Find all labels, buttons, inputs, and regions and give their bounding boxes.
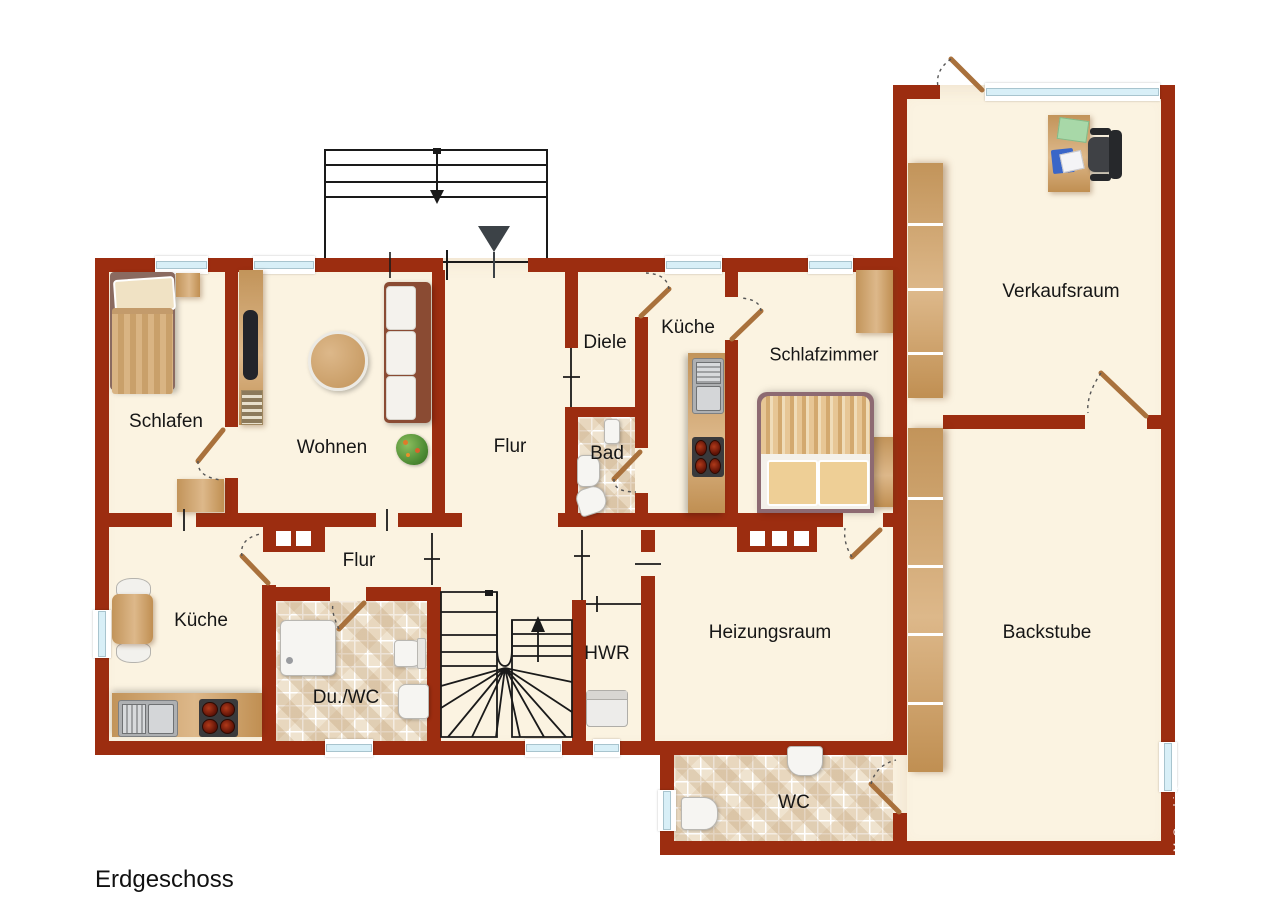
- wall: [572, 600, 586, 741]
- wall: [95, 258, 109, 610]
- wall: [398, 513, 462, 527]
- wall: [225, 270, 238, 427]
- chair: [116, 642, 151, 663]
- room-label-hwr: HWR: [584, 643, 629, 665]
- room-label-wohnen: Wohnen: [297, 437, 367, 459]
- wall: [893, 85, 940, 99]
- wall: [565, 407, 648, 417]
- cistern: [604, 419, 620, 444]
- wall: [95, 741, 325, 755]
- stair-start-dot: [433, 148, 441, 154]
- washing-machine: [586, 690, 628, 727]
- wall: [109, 513, 172, 527]
- wardrobe: [856, 270, 893, 333]
- round-table: [308, 331, 368, 391]
- window: [525, 739, 562, 757]
- floor-plan: Schlafen Wohnen Flur Diele Bad Küche Sch…: [0, 0, 1280, 905]
- nightstand: [176, 273, 200, 297]
- shower: [280, 620, 336, 676]
- window: [93, 610, 111, 658]
- window: [808, 256, 853, 274]
- double-bed: [757, 392, 874, 513]
- green-pad: [1057, 117, 1090, 143]
- shelf-unit: [908, 163, 943, 398]
- tv: [243, 310, 258, 380]
- single-bed: [110, 272, 175, 390]
- wall: [641, 530, 655, 552]
- window: [325, 739, 373, 757]
- wall: [883, 513, 893, 527]
- chimney-flue: [794, 531, 809, 546]
- shelf-books: [241, 390, 263, 425]
- plant: [396, 434, 428, 465]
- room-label-diele: Diele: [583, 332, 626, 354]
- stove: [692, 437, 724, 477]
- wall: [432, 270, 445, 517]
- stair-down-arrow-icon: [430, 190, 444, 204]
- wall: [660, 841, 1175, 855]
- wall: [635, 417, 648, 448]
- floor-title: Erdgeschoss: [95, 866, 234, 894]
- room-label-schlafzimmer: Schlafzimmer: [769, 345, 878, 366]
- wall: [315, 258, 443, 272]
- chimney-flue: [276, 531, 291, 546]
- wall: [660, 831, 674, 855]
- wall: [725, 270, 738, 297]
- wall: [893, 85, 907, 755]
- toilet: [394, 640, 424, 667]
- chimney-flue: [750, 531, 765, 546]
- wall: [660, 741, 674, 790]
- room-label-heizungsraum: Heizungsraum: [709, 622, 832, 644]
- bathroom-sink: [398, 684, 429, 719]
- wall: [725, 340, 738, 513]
- wall: [196, 513, 376, 527]
- watermark: McGrundriss: [1172, 797, 1184, 852]
- office-chair-back: [1109, 130, 1122, 179]
- bathroom-sink: [787, 746, 823, 776]
- wall: [528, 258, 665, 272]
- shop-window: [985, 83, 1160, 101]
- room-label-kueche-upper: Küche: [661, 317, 715, 339]
- wall: [262, 585, 276, 741]
- wall: [635, 493, 648, 513]
- side-cabinet: [874, 437, 893, 507]
- room-label-bad: Bad: [590, 443, 624, 465]
- dresser: [177, 479, 224, 512]
- wall: [427, 587, 441, 741]
- entrance-marker-icon: [478, 226, 510, 252]
- wall: [373, 741, 525, 755]
- kitchen-sink: [692, 358, 724, 414]
- wall: [562, 741, 593, 755]
- kitchen-sink: [118, 700, 178, 737]
- dining-table: [112, 594, 153, 644]
- wall: [641, 576, 655, 741]
- wall: [635, 317, 648, 407]
- chimney-flue: [772, 531, 787, 546]
- sofa: [384, 282, 431, 423]
- window: [665, 256, 722, 274]
- outdoor-stairs: [325, 150, 547, 258]
- wall: [1147, 415, 1161, 429]
- room-label-verkaufsraum: Verkaufsraum: [1002, 281, 1119, 303]
- room-label-du-wc: Du./WC: [313, 687, 380, 709]
- wall: [1161, 85, 1175, 742]
- shelf-unit: [908, 428, 943, 772]
- wall: [943, 415, 1085, 429]
- wall: [558, 513, 843, 527]
- office-chair-armrest: [1090, 128, 1111, 135]
- room-label-schlafen: Schlafen: [129, 411, 203, 433]
- chimney-flue: [296, 531, 311, 546]
- window: [658, 790, 676, 831]
- window: [593, 739, 620, 757]
- room-label-wc: WC: [778, 792, 810, 814]
- toilet: [681, 797, 718, 830]
- chimney-block: [263, 527, 325, 552]
- room-label-backstube: Backstube: [1003, 622, 1092, 644]
- room-label-flur-lower: Flur: [343, 550, 376, 572]
- office-chair-armrest: [1090, 174, 1111, 181]
- stove: [199, 699, 238, 737]
- wall: [262, 587, 330, 601]
- room-label-kueche-lower: Küche: [174, 610, 228, 632]
- room-label-flur-upper: Flur: [494, 436, 527, 458]
- wall: [565, 270, 578, 348]
